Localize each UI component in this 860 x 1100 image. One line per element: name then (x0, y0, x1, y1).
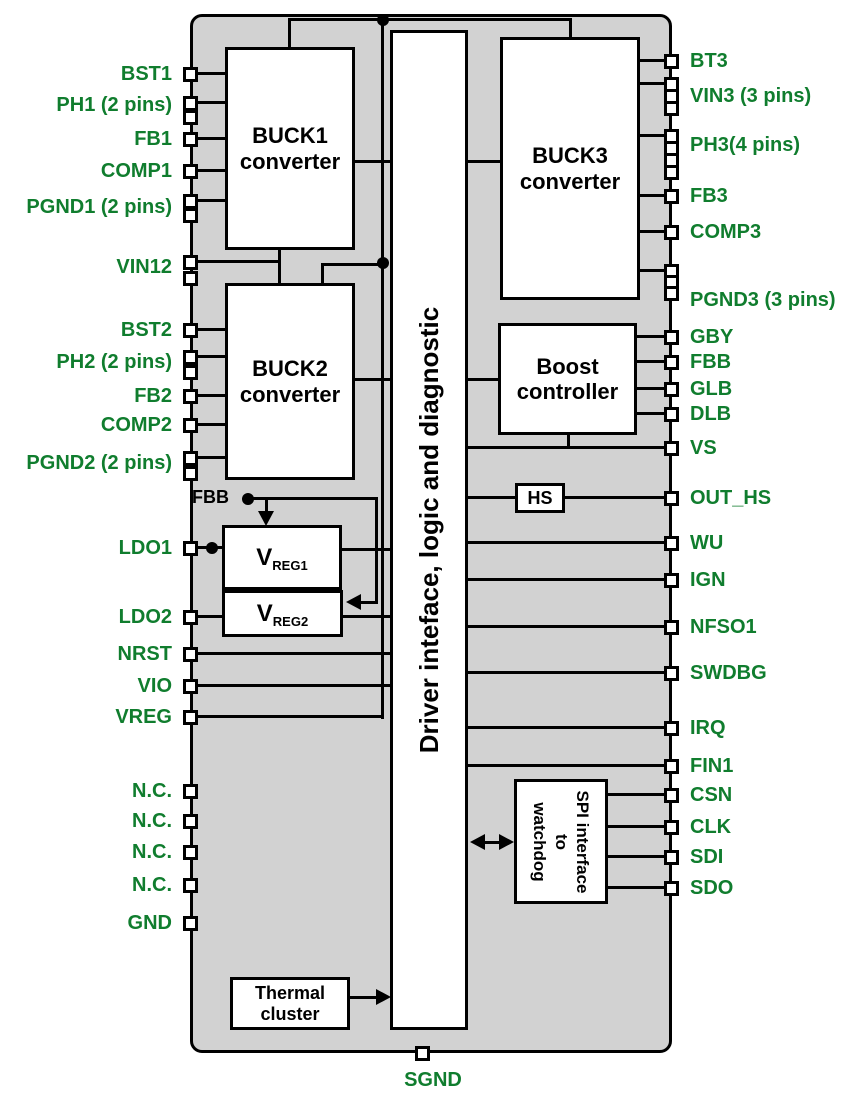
pin-clk (664, 820, 679, 835)
wire-bst2 (197, 328, 225, 331)
block-buck2: BUCK2 converter (225, 283, 355, 480)
wire-comp3 (640, 230, 666, 233)
pin-ph2-a (183, 350, 198, 365)
wire-vio (197, 684, 392, 687)
pin-label-gnd: GND (8, 911, 172, 935)
pin-bst1 (183, 67, 198, 82)
wire-ign (466, 578, 666, 581)
pin-pgnd1-b (183, 208, 198, 223)
pin-label-sdi: SDI (690, 845, 858, 869)
pin-comp2 (183, 418, 198, 433)
pin-label-bst1: BST1 (8, 62, 172, 86)
block-thermal-cluster: Thermal cluster (230, 977, 350, 1030)
pin-label-ph1: PH1 (2 pins) (8, 93, 172, 117)
wire-csn (606, 793, 666, 796)
wire-top-rail (288, 18, 572, 21)
pin-comp3 (664, 225, 679, 240)
pin-label-bst2: BST2 (8, 318, 172, 342)
pin-label-comp2: COMP2 (8, 413, 172, 437)
block-driver-label: Driver inteface, logic and diagnostic (390, 30, 468, 1030)
wire-fb2 (197, 394, 225, 397)
ic-block-diagram: BUCK1 converter BUCK2 converter BUCK3 co… (0, 0, 860, 1100)
pin-csn (664, 788, 679, 803)
pin-fb2 (183, 389, 198, 404)
pin-dlb (664, 407, 679, 422)
pin-label-bt3: BT3 (690, 49, 858, 73)
wire-irq (466, 726, 666, 729)
block-buck1-label: BUCK1 converter (240, 123, 340, 174)
block-boost-controller: Boost controller (498, 323, 637, 435)
pin-ph3-d (664, 165, 679, 180)
pin-wu (664, 536, 679, 551)
block-vreg1-label: VREG1 (256, 544, 307, 572)
wire-nrst (197, 652, 392, 655)
wire-pgnd3 (640, 269, 666, 272)
pin-sgnd (415, 1046, 430, 1061)
pin-vin3-c (664, 101, 679, 116)
pin-label-vreg: VREG (8, 705, 172, 729)
wire-ph2 (197, 355, 225, 358)
vreg2-sub: REG2 (273, 614, 308, 629)
pin-label-comp3: COMP3 (690, 220, 858, 244)
wire-boost-vs (567, 433, 570, 448)
pin-label-sdo: SDO (690, 876, 858, 900)
wire-rail-buck2 (321, 263, 324, 285)
wire-bt3 (640, 59, 666, 62)
wire-buck1-driver (355, 160, 392, 163)
pin-nc-4 (183, 878, 198, 893)
pin-vs (664, 441, 679, 456)
pin-label-ldo2: LDO2 (8, 605, 172, 629)
wire-wu (466, 541, 666, 544)
vreg2-main: V (257, 600, 273, 627)
arrowhead-thermal (376, 989, 391, 1005)
pin-label-csn: CSN (690, 783, 858, 807)
pin-pgnd2-a (183, 451, 198, 466)
pin-label-irq: IRQ (690, 716, 858, 740)
pin-pgnd1-a (183, 194, 198, 209)
junction-dot-ldo1 (206, 542, 218, 554)
wire-fin1 (466, 764, 666, 767)
block-hs-label: HS (527, 488, 552, 509)
wire-hs-right (563, 496, 666, 499)
wire-fb3 (640, 194, 666, 197)
pin-gnd (183, 916, 198, 931)
arrowhead-spi-right (499, 834, 514, 850)
pin-nc-3 (183, 845, 198, 860)
arrowhead-spi-left (470, 834, 485, 850)
wire-main-rail (381, 18, 384, 719)
pin-label-nc-3: N.C. (8, 840, 172, 864)
block-thermal-label: Thermal cluster (255, 983, 325, 1024)
block-buck3-label: BUCK3 converter (520, 143, 620, 194)
vreg1-sub: REG1 (272, 558, 307, 573)
pin-ph1-a (183, 96, 198, 111)
wire-buck1-buck2 (278, 247, 281, 285)
wire-dlb (635, 412, 666, 415)
pin-ph2-b (183, 365, 198, 380)
pin-label-clk: CLK (690, 815, 858, 839)
pin-label-dlb: DLB (690, 402, 858, 426)
pin-label-vio: VIO (8, 674, 172, 698)
pin-glb (664, 382, 679, 397)
pin-fbb (664, 355, 679, 370)
wire-buck2-driver (355, 378, 392, 381)
pin-irq (664, 721, 679, 736)
pin-label-fin1: FIN1 (690, 754, 858, 778)
wire-sdi (606, 855, 666, 858)
wire-fbb-v (375, 497, 378, 604)
wire-clk (606, 825, 666, 828)
pin-label-nfso1: NFSO1 (690, 615, 858, 639)
pin-label-ph3: PH3(4 pins) (690, 133, 858, 157)
wire-vreg2-driver (343, 615, 392, 618)
pin-label-wu: WU (690, 531, 858, 555)
pin-label-nc-4: N.C. (8, 873, 172, 897)
wire-vreg1-driver (342, 548, 392, 551)
pin-label-fb3: FB3 (690, 184, 858, 208)
pin-ign (664, 573, 679, 588)
wire-vreg (197, 715, 384, 718)
arrowhead-into-vreg2 (346, 594, 361, 610)
wire-vs (466, 446, 666, 449)
junction-dot-vin12-rail (377, 257, 389, 269)
wire-pgnd2 (197, 456, 225, 459)
fbb-net-label: FBB (192, 487, 244, 508)
pin-label-comp1: COMP1 (8, 159, 172, 183)
wire-hs-left (466, 496, 515, 499)
pin-label-ign: IGN (690, 568, 858, 592)
block-buck3: BUCK3 converter (500, 37, 640, 300)
wire-vin12 (197, 260, 281, 263)
wire-rail-buck1 (288, 18, 291, 50)
pin-vin12-a (183, 255, 198, 270)
pin-label-swdbg: SWDBG (690, 661, 858, 685)
pin-gby (664, 330, 679, 345)
wire-ph3 (640, 134, 666, 137)
wire-fbb-arrow (358, 601, 378, 604)
pin-ldo2 (183, 610, 198, 625)
pin-label-nrst: NRST (8, 642, 172, 666)
pin-label-ph2: PH2 (2 pins) (8, 350, 172, 374)
block-vreg2: VREG2 (222, 590, 343, 637)
pin-label-sgnd: SGND (393, 1068, 473, 1092)
junction-dot-top-rail (377, 14, 389, 26)
pin-pgnd3-c (664, 286, 679, 301)
pin-comp1 (183, 164, 198, 179)
block-hs: HS (515, 483, 565, 513)
wire-comp2 (197, 423, 225, 426)
pin-label-out-hs: OUT_HS (690, 486, 858, 510)
wire-swdbg (466, 671, 666, 674)
wire-pgnd1 (197, 199, 225, 202)
arrowhead-into-vreg1 (258, 511, 274, 526)
pin-fin1 (664, 759, 679, 774)
wire-gby (635, 335, 666, 338)
pin-label-vin3: VIN3 (3 pins) (690, 84, 858, 108)
wire-thermal-link (350, 996, 378, 999)
pin-bst2 (183, 323, 198, 338)
pin-vio (183, 679, 198, 694)
pin-label-nc-1: N.C. (8, 779, 172, 803)
block-buck2-label: BUCK2 converter (240, 356, 340, 407)
pin-label-fbb: FBB (690, 350, 858, 374)
pin-label-vs: VS (690, 436, 858, 460)
pin-fb3 (664, 189, 679, 204)
pin-out-hs (664, 491, 679, 506)
wire-comp1 (197, 169, 225, 172)
pin-nrst (183, 647, 198, 662)
pin-vin12-b (183, 271, 198, 286)
wire-ldo2 (197, 615, 223, 618)
pin-nfso1 (664, 620, 679, 635)
wire-driver-boost (466, 378, 500, 381)
block-vreg1: VREG1 (222, 525, 342, 590)
pin-bt3 (664, 54, 679, 69)
wire-vin12-rail (323, 263, 384, 266)
vreg1-main: V (256, 544, 272, 571)
pin-label-gby: GBY (690, 325, 858, 349)
pin-label-fb2: FB2 (8, 384, 172, 408)
pin-label-pgnd2: PGND2 (2 pins) (8, 451, 172, 475)
wire-fbb-pin (635, 360, 666, 363)
pin-label-fb1: FB1 (8, 127, 172, 151)
pin-nc-2 (183, 814, 198, 829)
pin-label-pgnd3: PGND3 (3 pins) (690, 288, 858, 312)
pin-pgnd2-b (183, 466, 198, 481)
wire-glb (635, 387, 666, 390)
wire-vin3 (640, 82, 666, 85)
junction-dot-fbb (242, 493, 254, 505)
wire-driver-buck3 (466, 160, 502, 163)
pin-fb1 (183, 132, 198, 147)
block-boost-label: Boost controller (517, 354, 618, 405)
pin-label-ldo1: LDO1 (8, 536, 172, 560)
pin-ph1-b (183, 110, 198, 125)
wire-nfso1 (466, 625, 666, 628)
block-buck1: BUCK1 converter (225, 47, 355, 250)
pin-sdi (664, 850, 679, 865)
pin-sdo (664, 881, 679, 896)
pin-swdbg (664, 666, 679, 681)
pin-vreg (183, 710, 198, 725)
pin-nc-1 (183, 784, 198, 799)
wire-fb1 (197, 137, 225, 140)
wire-sdo (606, 886, 666, 889)
pin-ldo1 (183, 541, 198, 556)
pin-label-nc-2: N.C. (8, 809, 172, 833)
wire-bst1 (197, 72, 225, 75)
block-spi-label: SPI interface to watchdog (516, 782, 606, 902)
wire-ph1 (197, 101, 225, 104)
pin-label-glb: GLB (690, 377, 858, 401)
block-vreg2-label: VREG2 (257, 600, 308, 628)
pin-label-vin12: VIN12 (8, 255, 172, 279)
pin-label-pgnd1: PGND1 (2 pins) (8, 195, 172, 219)
